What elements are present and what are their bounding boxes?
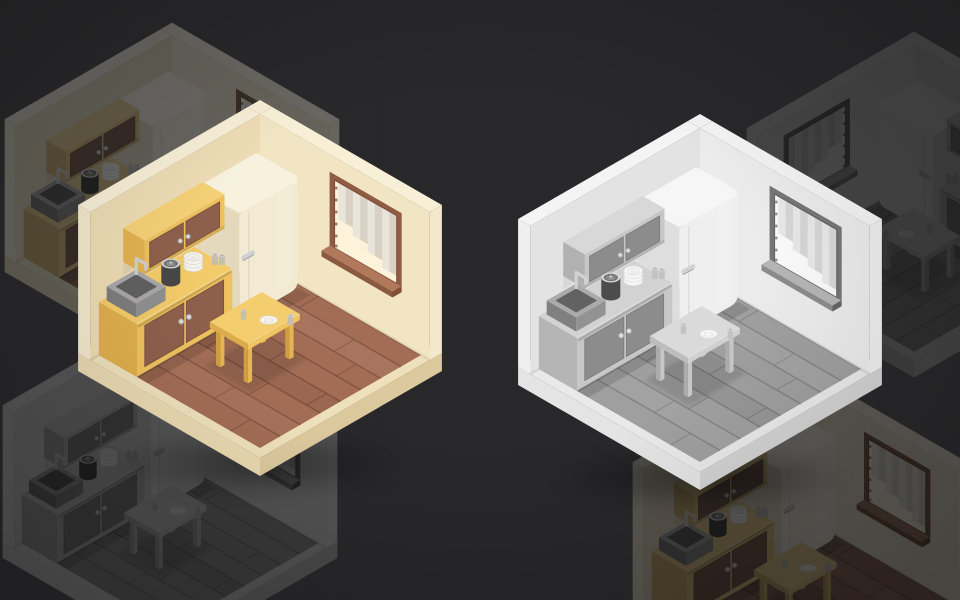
kitchen-room-gray	[500, 97, 900, 497]
render-canvas	[0, 0, 960, 600]
kitchen-room-warm	[60, 83, 460, 483]
